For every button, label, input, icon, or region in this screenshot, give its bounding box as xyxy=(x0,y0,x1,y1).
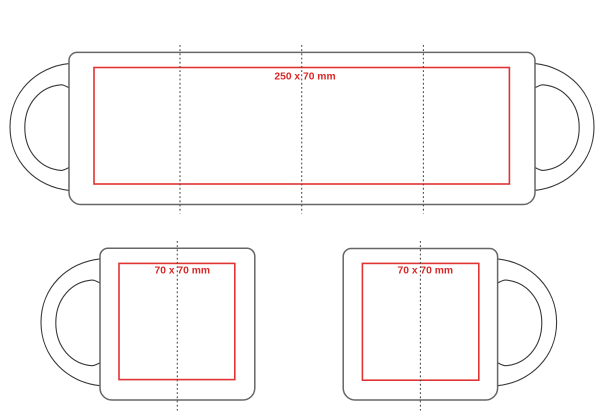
svg-text:70 x 70 mm: 70 x 70 mm xyxy=(398,266,454,277)
svg-text:250 x 70 mm: 250 x 70 mm xyxy=(274,72,335,83)
svg-text:70 x 70 mm: 70 x 70 mm xyxy=(155,266,211,277)
